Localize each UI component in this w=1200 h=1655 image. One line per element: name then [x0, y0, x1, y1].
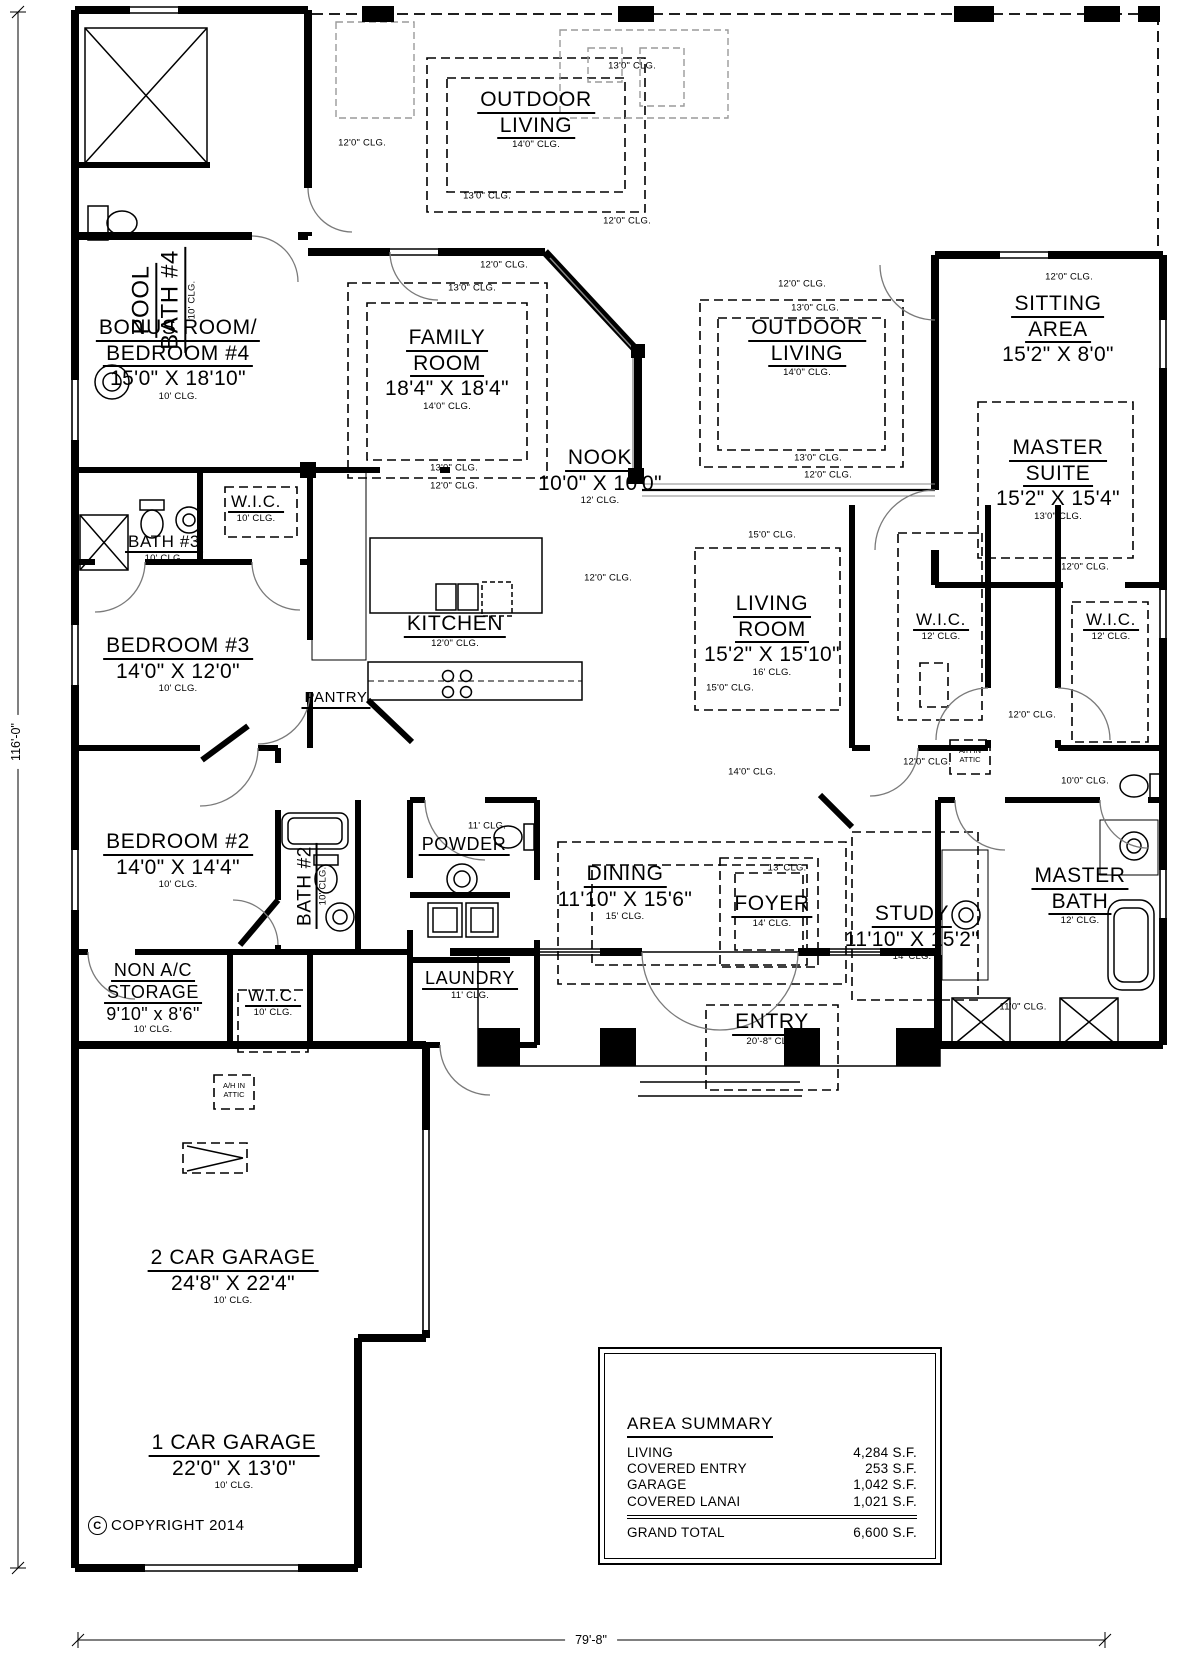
room-name-line: KITCHEN — [404, 612, 506, 638]
area-summary-row: COVERED ENTRY253 S.F. — [627, 1461, 917, 1477]
room-ceiling-height: 12' CLG. — [913, 632, 969, 643]
room-name-line: LIVING — [768, 342, 846, 368]
room-ceiling-height: 12' CLG. — [1031, 916, 1128, 927]
room-ceiling-height: 10' CLG. — [125, 554, 203, 565]
area-summary-grand-total: GRAND TOTAL 6,600 S.F. — [627, 1515, 917, 1540]
room-name-line: BONUS ROOM/ — [96, 316, 260, 342]
room-name-line: DINING — [583, 862, 666, 888]
room-label-garage-1car: 1 CAR GARAGE22'0" X 13'0"10' CLG. — [149, 1431, 320, 1492]
room-name-line: AREA — [1025, 318, 1091, 344]
area-row-label: COVERED ENTRY — [627, 1461, 747, 1477]
room-label-entry: ENTRY20'-8" CLG. — [732, 1010, 812, 1047]
room-ceiling-height: 10' CLG. — [149, 1481, 320, 1492]
room-name-line: 1 CAR GARAGE — [149, 1431, 320, 1457]
room-label-garage-2car: 2 CAR GARAGE24'8" X 22'4"10' CLG. — [148, 1246, 319, 1307]
equipment-label-line: ATTIC — [959, 755, 981, 764]
overall-width-dimension: 79'-8" — [565, 1633, 617, 1647]
room-name-line: PANTRY — [301, 690, 370, 709]
grand-total-value: 6,600 S.F. — [853, 1525, 917, 1540]
ceiling-height-label: 13'0" CLG. — [463, 191, 511, 202]
room-label-bath-3: BATH #310' CLG. — [125, 532, 203, 565]
room-dimensions: 24'8" X 22'4" — [148, 1272, 319, 1296]
room-ceiling-height: 14'0" CLG. — [748, 368, 866, 379]
room-name-line: BEDROOM #4 — [103, 342, 253, 368]
room-label-wic-bed2: W.I.C.10' CLG. — [245, 986, 301, 1019]
room-name-line: MASTER — [1031, 864, 1128, 890]
room-ceiling-height: 14' CLG. — [845, 952, 979, 963]
room-dimensions: 9'10" x 8'6" — [104, 1004, 202, 1024]
copyright-icon: C — [88, 1516, 107, 1535]
area-summary-table: AREA SUMMARY LIVING4,284 S.F.COVERED ENT… — [598, 1347, 942, 1565]
room-ceiling-height: 20'-8" CLG. — [732, 1037, 812, 1048]
room-ceiling-height: 12' CLG. — [538, 496, 662, 507]
ceiling-height-label: 13'0" CLG. — [794, 453, 842, 464]
ceiling-height-label: 12'0" CLG. — [1061, 562, 1109, 573]
area-row-value: 4,284 S.F. — [853, 1445, 917, 1461]
ceiling-height-label: 12'0" CLG. — [778, 279, 826, 290]
room-label-laundry: LAUNDRY11' CLG. — [422, 968, 518, 1002]
room-name-line: BATH #3 — [125, 532, 203, 553]
area-row-value: 1,021 S.F. — [853, 1494, 917, 1510]
room-ceiling-height: 10' CLG. — [104, 1025, 202, 1036]
room-label-foyer: FOYER14' CLG. — [731, 892, 812, 929]
area-summary-rows: LIVING4,284 S.F.COVERED ENTRY253 S.F.GAR… — [627, 1445, 917, 1510]
area-summary-row: COVERED LANAI1,021 S.F. — [627, 1494, 917, 1510]
area-row-value: 1,042 S.F. — [853, 1477, 917, 1493]
room-label-master-suite: MASTERSUITE15'2" X 15'4"13'0" CLG. — [996, 436, 1120, 522]
room-dimensions: 22'0" X 13'0" — [149, 1457, 320, 1481]
room-name-line: STUDY — [872, 902, 952, 928]
room-ceiling-height: 10' CLG. — [103, 684, 253, 695]
room-dimensions: 11'10" X 15'6" — [558, 888, 692, 912]
area-row-value: 253 S.F. — [865, 1461, 917, 1477]
room-label-outdoor-living-north: OUTDOORLIVING14'0" CLG. — [477, 88, 595, 151]
ceiling-height-label: 12'0" CLG. — [1045, 272, 1093, 283]
room-ceiling-height: 12'0" CLG. — [404, 639, 506, 650]
room-dimensions: 14'0" X 12'0" — [103, 660, 253, 684]
room-name-line: BEDROOM #3 — [103, 634, 253, 660]
ceiling-height-label: 13'0" CLG. — [430, 463, 478, 474]
ceiling-height-label: 10'0" CLG. — [1061, 776, 1109, 787]
room-label-bath-2: BATH #210' CLG. — [295, 843, 330, 929]
room-name-line: NON A/C — [111, 960, 195, 982]
room-name-line: STORAGE — [104, 982, 202, 1004]
room-name-line: W.I.C. — [228, 492, 284, 513]
room-ceiling-height: 10' CLG. — [96, 392, 260, 403]
ceiling-height-label: 11'0" CLG. — [999, 1002, 1046, 1013]
ceiling-height-label: 12'0" CLG. — [1008, 710, 1056, 721]
room-label-living-room: LIVINGROOM15'2" X 15'10"16' CLG. — [704, 592, 840, 678]
ceiling-height-label: 12'0" CLG. — [430, 481, 478, 492]
room-ceiling-height: 15' CLG. — [558, 912, 692, 923]
room-dimensions: 15'2" X 8'0" — [1002, 343, 1114, 367]
room-dimensions: 15'2" X 15'4" — [996, 487, 1120, 511]
area-row-label: GARAGE — [627, 1477, 687, 1493]
room-name-line: POWDER — [419, 834, 510, 856]
room-dimensions: 14'0" X 14'4" — [103, 856, 253, 880]
area-summary-row: GARAGE1,042 S.F. — [627, 1477, 917, 1493]
room-label-bedroom-3: BEDROOM #314'0" X 12'0"10' CLG. — [103, 634, 253, 695]
room-label-bonus-room: BONUS ROOM/BEDROOM #415'0" X 18'10"10' C… — [96, 316, 260, 402]
floor-plan-page: POOLBATH #410' CLG.OUTDOORLIVING14'0" CL… — [0, 0, 1200, 1655]
room-ceiling-height: 14'0" CLG. — [385, 402, 509, 413]
ceiling-height-label: 14'0" CLG. — [728, 767, 776, 778]
ceiling-height-label: 13'0" CLG. — [791, 303, 839, 314]
room-label-powder: POWDER — [419, 834, 510, 856]
area-row-label: COVERED LANAI — [627, 1494, 740, 1510]
room-dimensions: 11'10" X 15'2" — [845, 928, 979, 952]
ceiling-height-label: 12'0" CLG. — [584, 573, 632, 584]
ceiling-height-label: 13'0" CLG. — [448, 283, 496, 294]
room-label-wic-master-1: W.I.C.12' CLG. — [913, 610, 969, 643]
equipment-label-line: ATTIC — [223, 1090, 245, 1099]
ceiling-height-label: 11' CLG. — [468, 821, 506, 832]
room-ceiling-height: 10' CLG. — [245, 1008, 301, 1019]
room-name-line: SUITE — [1023, 462, 1094, 488]
room-name-line: BATH #2 — [295, 843, 318, 929]
room-label-storage: NON A/CSTORAGE9'10" x 8'6"10' CLG. — [104, 960, 202, 1036]
room-name-line: FAMILY — [406, 326, 489, 352]
room-name-line: LIVING — [733, 592, 811, 618]
ceiling-height-label: 12'0" CLG. — [903, 757, 951, 768]
ceiling-height-label: 12'0" CLG. — [338, 138, 386, 149]
room-label-dining: DINING11'10" X 15'6"15' CLG. — [558, 862, 692, 923]
room-label-wic-bed34: W.I.C.10' CLG. — [228, 492, 284, 525]
room-name-line: LIVING — [497, 114, 575, 140]
equipment-label-line: A/H IN — [223, 1081, 245, 1090]
room-dimensions: 15'2" X 15'10" — [704, 643, 840, 667]
room-ceiling-height: 10' CLG. — [103, 880, 253, 891]
room-label-master-bath: MASTERBATH12' CLG. — [1031, 864, 1128, 927]
area-summary-row: LIVING4,284 S.F. — [627, 1445, 917, 1461]
room-ceiling-height: 14'0" CLG. — [477, 140, 595, 151]
overall-depth-dimension: 116'-0" — [9, 715, 23, 769]
equipment-label-line: A/H IN — [959, 746, 981, 755]
ceiling-height-label: 15'0" CLG. — [748, 530, 796, 541]
room-label-study: STUDY11'10" X 15'2"14' CLG. — [845, 902, 979, 963]
room-name-line: MASTER — [1009, 436, 1106, 462]
room-ceiling-height: 10' CLG. — [228, 514, 284, 525]
equipment-label: A/H INATTIC — [223, 1081, 245, 1100]
area-summary-inner: AREA SUMMARY LIVING4,284 S.F.COVERED ENT… — [604, 1353, 936, 1559]
room-label-bedroom-2: BEDROOM #214'0" X 14'4"10' CLG. — [103, 830, 253, 891]
ceiling-height-label: 12'0" CLG. — [603, 216, 651, 227]
copyright-note: C COPYRIGHT 2014 — [88, 1516, 244, 1535]
room-name-line: W.I.C. — [1083, 610, 1139, 631]
room-ceiling-height: 12' CLG. — [1083, 632, 1139, 643]
room-ceiling-height: 10' CLG. — [148, 1296, 319, 1307]
room-ceiling-height: 16' CLG. — [704, 668, 840, 679]
room-label-sitting-area: SITTINGAREA15'2" X 8'0" — [1002, 292, 1114, 367]
room-name-line: BEDROOM #2 — [103, 830, 253, 856]
room-name-line: 2 CAR GARAGE — [148, 1246, 319, 1272]
room-name-line: BATH — [1049, 890, 1112, 916]
equipment-label: A/H INATTIC — [959, 746, 981, 765]
room-dimensions: 10'0" X 10'0" — [538, 472, 662, 496]
room-label-pantry: PANTRY — [301, 690, 370, 709]
room-name-line: W.I.C. — [245, 986, 301, 1007]
room-ceiling-height: 14' CLG. — [731, 919, 812, 930]
area-summary-title: AREA SUMMARY — [627, 1414, 773, 1438]
room-label-wic-master-2: W.I.C.12' CLG. — [1083, 610, 1139, 643]
ceiling-height-label: 15'0" CLG. — [706, 683, 754, 694]
copyright-text: COPYRIGHT 2014 — [111, 1517, 244, 1534]
room-name-line: OUTDOOR — [748, 316, 866, 342]
room-name-line: ENTRY — [732, 1010, 812, 1036]
room-label-outdoor-living-east: OUTDOORLIVING14'0" CLG. — [748, 316, 866, 379]
room-name-line: W.I.C. — [913, 610, 969, 631]
room-label-family-room: FAMILYROOM18'4" X 18'4"14'0" CLG. — [385, 326, 509, 412]
room-ceiling-height: 11' CLG. — [422, 991, 518, 1002]
room-dimensions: 18'4" X 18'4" — [385, 377, 509, 401]
room-name-line: LAUNDRY — [422, 968, 518, 990]
ceiling-height-label: 13'0" CLG. — [608, 61, 656, 72]
room-label-nook: NOOK10'0" X 10'0"12' CLG. — [538, 446, 662, 507]
room-ceiling-height: 13'0" CLG. — [996, 512, 1120, 523]
room-name-line: ROOM — [410, 352, 484, 378]
room-name-line: FOYER — [731, 892, 812, 918]
ceiling-height-label: 13' CLG. — [768, 863, 807, 874]
room-name-line: OUTDOOR — [477, 88, 595, 114]
room-label-kitchen: KITCHEN12'0" CLG. — [404, 612, 506, 649]
room-name-line: SITTING — [1011, 292, 1104, 318]
grand-total-label: GRAND TOTAL — [627, 1525, 725, 1540]
area-row-label: LIVING — [627, 1445, 673, 1461]
room-name-line: NOOK — [565, 446, 635, 472]
room-dimensions: 15'0" X 18'10" — [96, 367, 260, 391]
room-ceiling-height: 10' CLG. — [319, 843, 330, 929]
ceiling-height-label: 12'0" CLG. — [804, 470, 852, 481]
room-name-line: ROOM — [735, 618, 809, 644]
ceiling-height-label: 12'0" CLG. — [480, 260, 528, 271]
